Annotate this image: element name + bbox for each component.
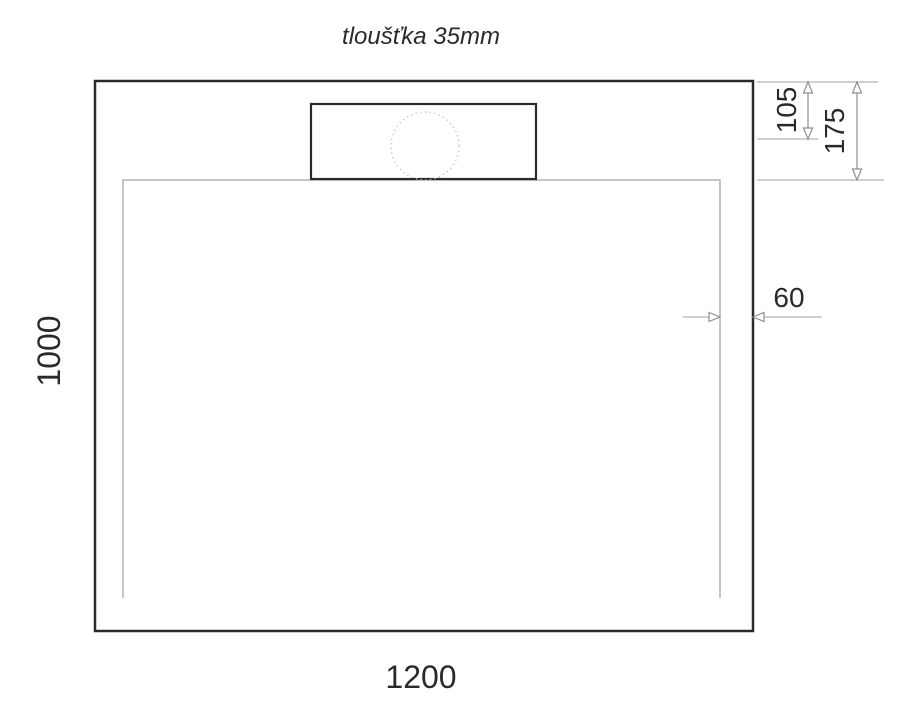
- drawing-title: tloušťka 35mm: [342, 23, 500, 50]
- arrowhead-left-icon: [753, 313, 764, 322]
- technical-drawing-page: tloušťka 35mm 105 175 60 1000 1200: [0, 0, 900, 710]
- dim-60-label: 60: [773, 282, 804, 313]
- dim-105-label: 105: [771, 87, 802, 134]
- drain-housing-box: [311, 104, 536, 179]
- arrowhead-down-icon: [804, 128, 813, 139]
- width-label: 1200: [385, 659, 456, 695]
- arrowhead-down-icon: [853, 169, 862, 180]
- dim-175-label: 175: [819, 108, 850, 155]
- height-label: 1000: [31, 315, 67, 386]
- arrowhead-up-icon: [853, 82, 862, 93]
- shower-tray-drawing: tloušťka 35mm 105 175 60 1000 1200: [0, 0, 900, 710]
- arrowhead-up-icon: [804, 82, 813, 93]
